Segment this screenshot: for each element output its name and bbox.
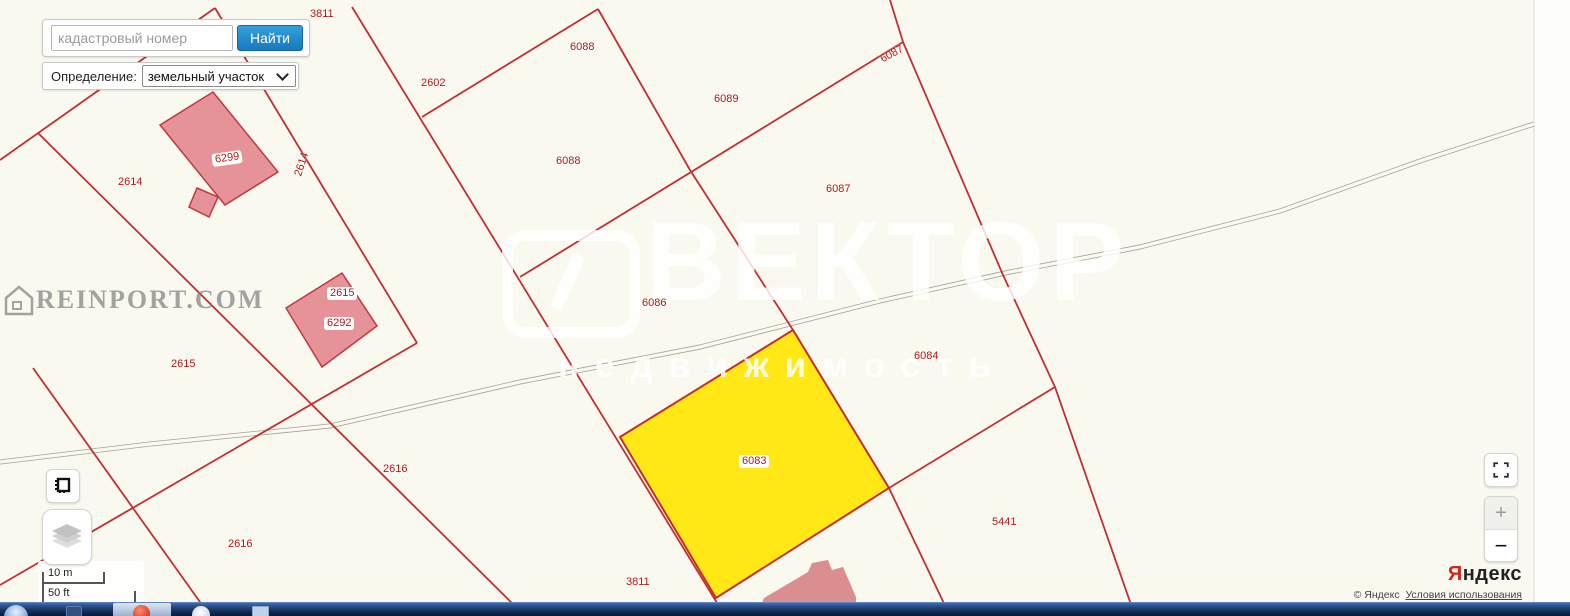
terms-of-use-link[interactable]: Условия использования	[1405, 589, 1522, 601]
scale-imperial-label: 50 ft	[48, 587, 69, 599]
yandex-logo[interactable]: Яндекс	[1448, 563, 1522, 586]
parcel-label-6292: 6292	[324, 317, 354, 330]
find-button[interactable]: Найти	[237, 25, 303, 51]
parcel-label-5441: 5441	[992, 516, 1016, 529]
map-edge-strip	[1534, 0, 1570, 616]
browser-icon	[133, 605, 150, 616]
yandex-logo-rest: ндекс	[1463, 563, 1522, 585]
parcel-label-6089: 6089	[714, 93, 738, 106]
parcel-label-2616-lower: 2616	[228, 538, 252, 551]
chevron-down-icon	[276, 68, 289, 81]
start-button[interactable]	[4, 605, 28, 616]
parcel-label-3811-top: 3811	[310, 8, 334, 21]
parcel-label-6084: 6084	[914, 350, 938, 363]
parcel-label-6083[interactable]: 6083	[739, 455, 769, 468]
taskbar-window-icon[interactable]	[252, 606, 269, 616]
definition-selected-value: земельный участок	[148, 69, 278, 84]
parcel-label-2615: 2615	[171, 358, 195, 371]
layers-icon	[50, 522, 84, 552]
layers-button[interactable]	[42, 509, 92, 565]
definition-panel: Определение: земельный участок	[42, 62, 299, 90]
ruler-tool-button[interactable]	[46, 469, 80, 503]
parcel-label-3811-bottom: 3811	[626, 576, 650, 589]
windows-taskbar	[0, 602, 1570, 616]
ruler-icon	[53, 476, 73, 496]
zoom-in-button[interactable]: +	[1485, 497, 1517, 530]
zoom-control: + −	[1484, 496, 1518, 562]
parcel-label-6087: 6087	[826, 183, 850, 196]
parcel-label-2615-chip: 2615	[327, 287, 357, 300]
map-canvas[interactable]	[0, 0, 1570, 616]
yandex-logo-initial: Я	[1448, 563, 1463, 585]
cadastral-map-app: REINPORT.COM ВЕКТОР недвижимость 3811 26…	[0, 0, 1570, 616]
parcel-label-6088-upper: 6088	[570, 41, 594, 54]
cadastral-number-input[interactable]	[51, 25, 233, 51]
zoom-out-button[interactable]: −	[1485, 530, 1517, 561]
parcel-label-2602: 2602	[421, 77, 445, 90]
attribution-line: © Яндекс Условия использования	[1354, 589, 1522, 601]
fullscreen-button[interactable]	[1484, 453, 1518, 487]
taskbar-app-icon[interactable]	[66, 606, 82, 616]
parcel-label-2616-upper: 2616	[383, 463, 407, 476]
parcel-label-6088-center: 6088	[556, 155, 580, 168]
scale-metric-label: 10 m	[48, 567, 72, 579]
definition-label: Определение:	[51, 69, 137, 84]
parcel-label-2614-left: 2614	[118, 176, 142, 189]
parcel-label-6086: 6086	[642, 297, 666, 310]
definition-select[interactable]: земельный участок	[142, 65, 296, 87]
taskbar-active-app[interactable]	[113, 603, 171, 616]
fullscreen-icon	[1492, 461, 1510, 479]
taskbar-round-icon[interactable]	[192, 606, 210, 616]
search-panel: Найти	[42, 19, 310, 57]
copyright-text: © Яндекс	[1354, 589, 1400, 601]
